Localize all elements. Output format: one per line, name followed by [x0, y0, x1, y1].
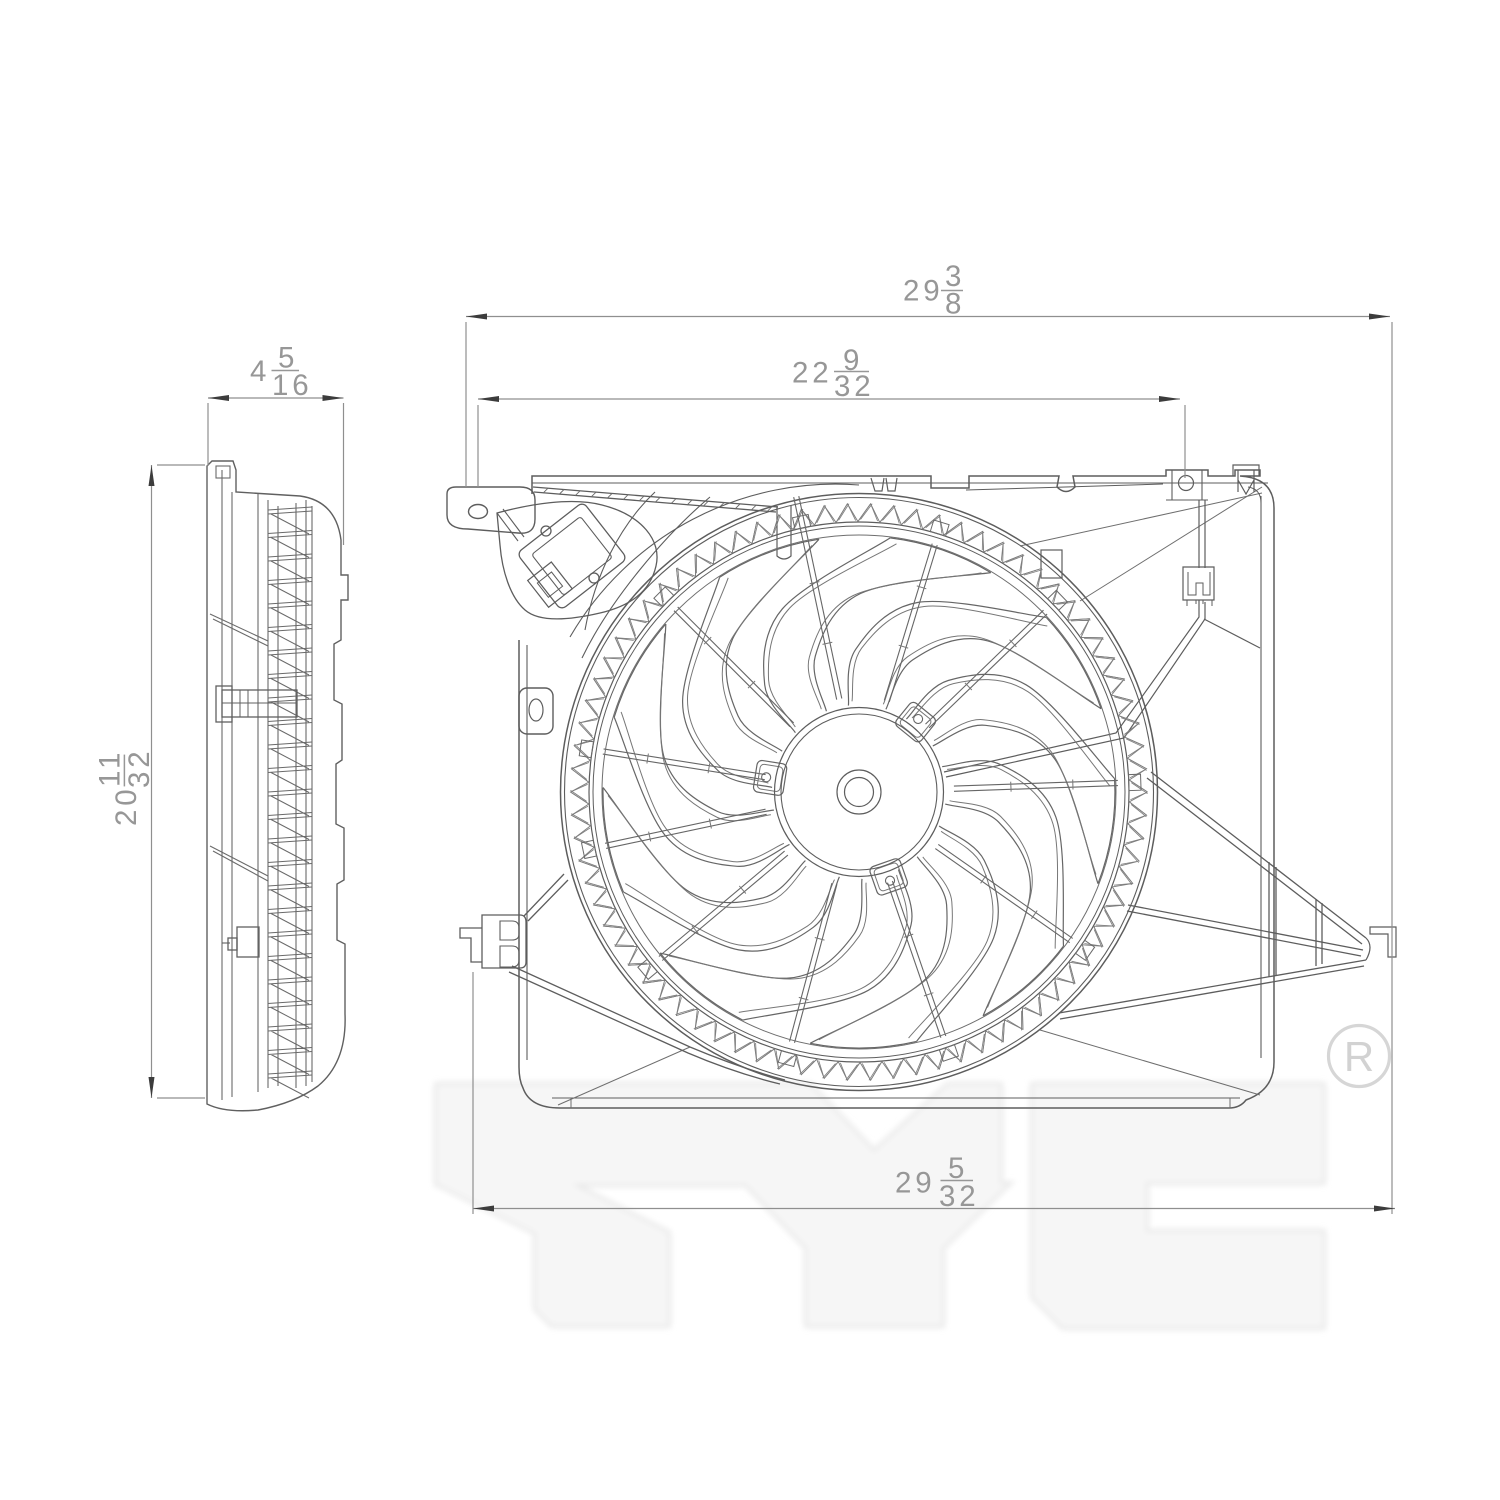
- svg-text:8: 8: [945, 288, 965, 321]
- svg-text:32: 32: [939, 1180, 979, 1213]
- svg-text:29: 29: [903, 275, 943, 308]
- svg-text:20: 20: [110, 786, 143, 826]
- svg-text:29: 29: [895, 1167, 935, 1200]
- svg-text:16: 16: [272, 369, 312, 402]
- svg-text:R: R: [1344, 1033, 1374, 1080]
- svg-text:4: 4: [250, 355, 270, 388]
- svg-text:11: 11: [94, 749, 127, 787]
- svg-text:32: 32: [123, 748, 156, 788]
- svg-text:32: 32: [834, 370, 874, 403]
- svg-text:22: 22: [792, 357, 832, 390]
